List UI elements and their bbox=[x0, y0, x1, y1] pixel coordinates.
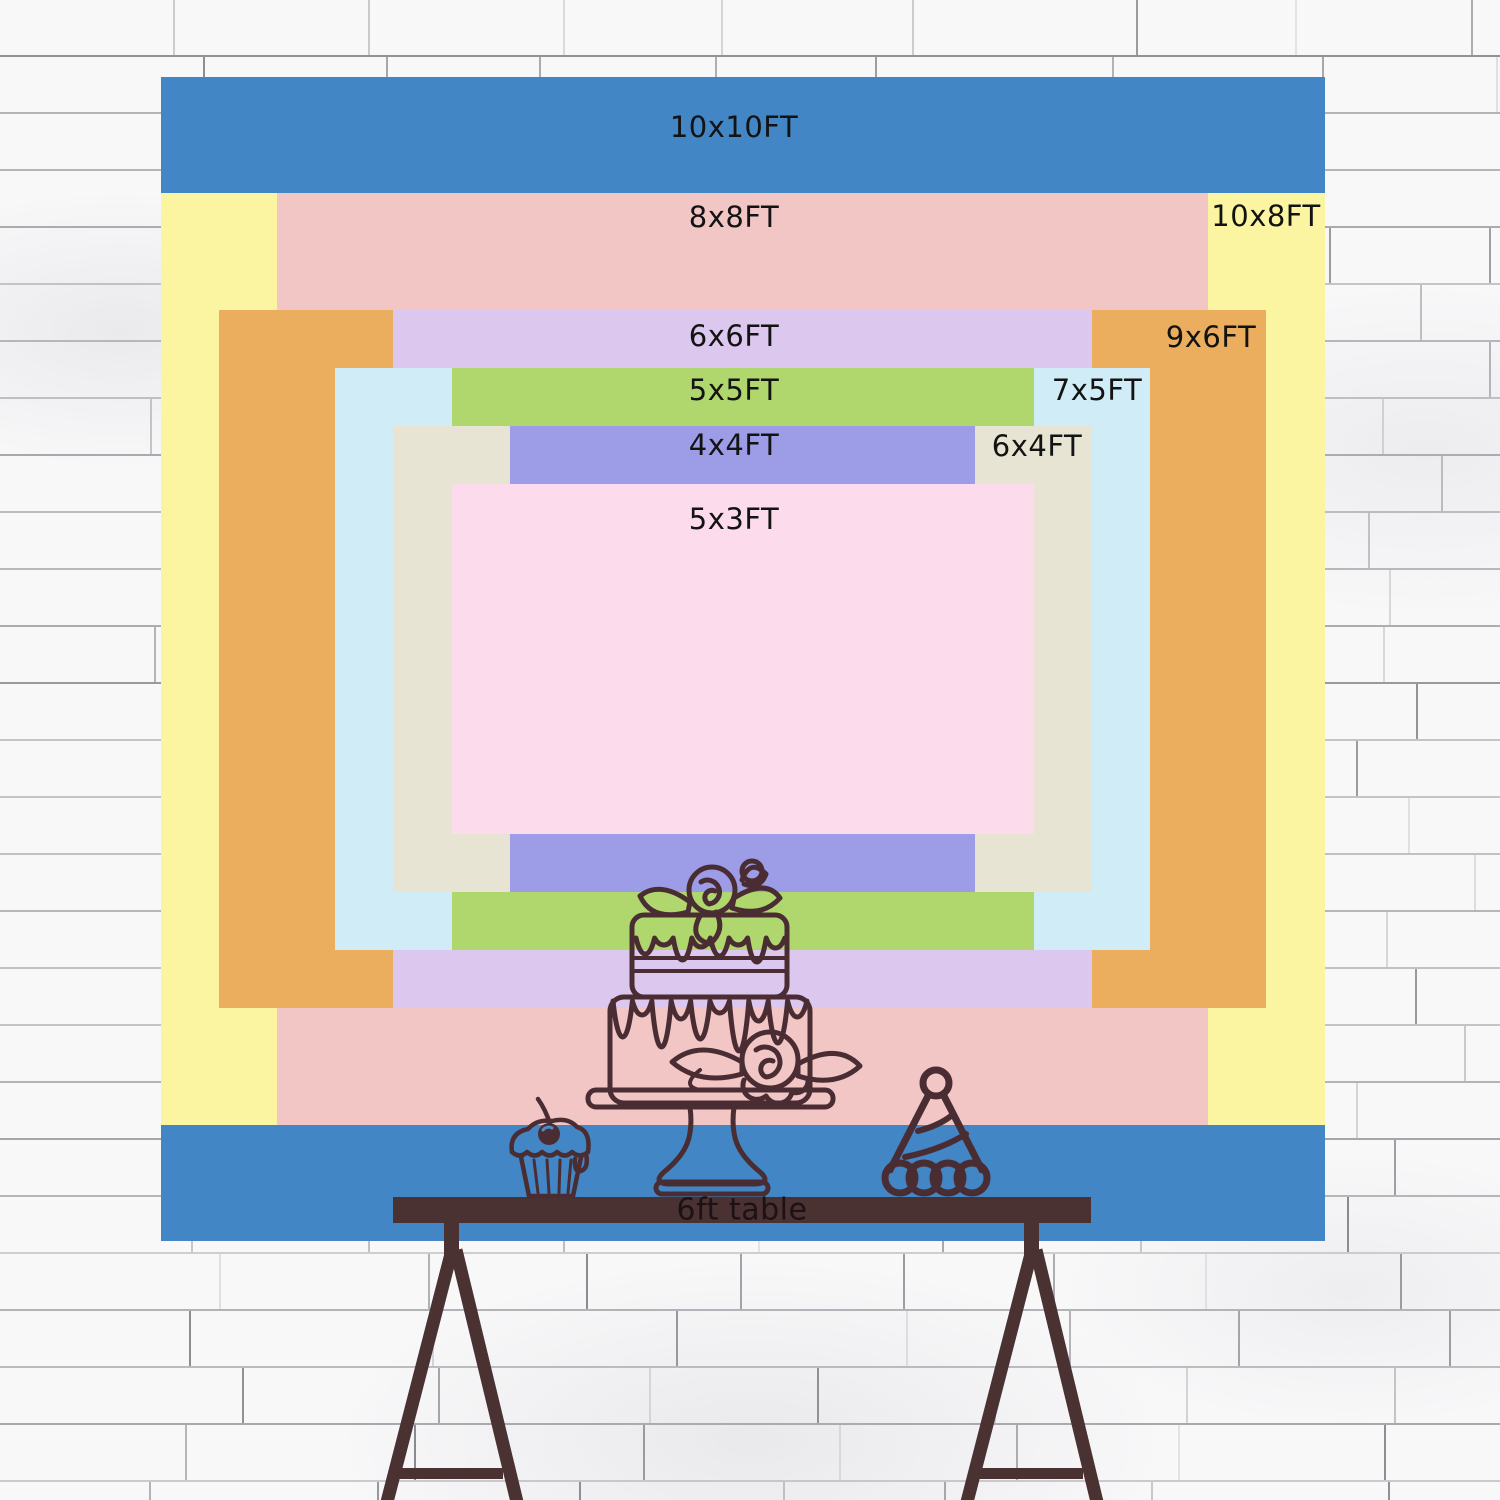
size-label-5x3: 5x3FT bbox=[689, 502, 779, 536]
size-label-6x6: 6x6FT bbox=[689, 319, 779, 353]
backdrop-size-banner: 10x10FT10x8FT8x8FT9x6FT6x6FT7x5FT5x5FT6x… bbox=[0, 0, 1500, 1500]
size-label-8x8: 8x8FT bbox=[689, 200, 779, 234]
size-rect-5x3 bbox=[452, 484, 1034, 833]
size-label-6x4: 6x4FT bbox=[992, 429, 1082, 463]
backdrop-size-chart: 10x10FT10x8FT8x8FT9x6FT6x6FT7x5FT5x5FT6x… bbox=[0, 0, 1500, 1500]
size-label-9x6: 9x6FT bbox=[1166, 320, 1256, 354]
table-size-label: 6ft table bbox=[677, 1193, 808, 1228]
size-label-5x5: 5x5FT bbox=[689, 373, 779, 407]
size-label-10x8: 10x8FT bbox=[1211, 199, 1320, 233]
size-label-4x4: 4x4FT bbox=[689, 428, 779, 462]
size-label-10x10: 10x10FT bbox=[670, 110, 798, 144]
size-label-7x5: 7x5FT bbox=[1052, 373, 1142, 407]
